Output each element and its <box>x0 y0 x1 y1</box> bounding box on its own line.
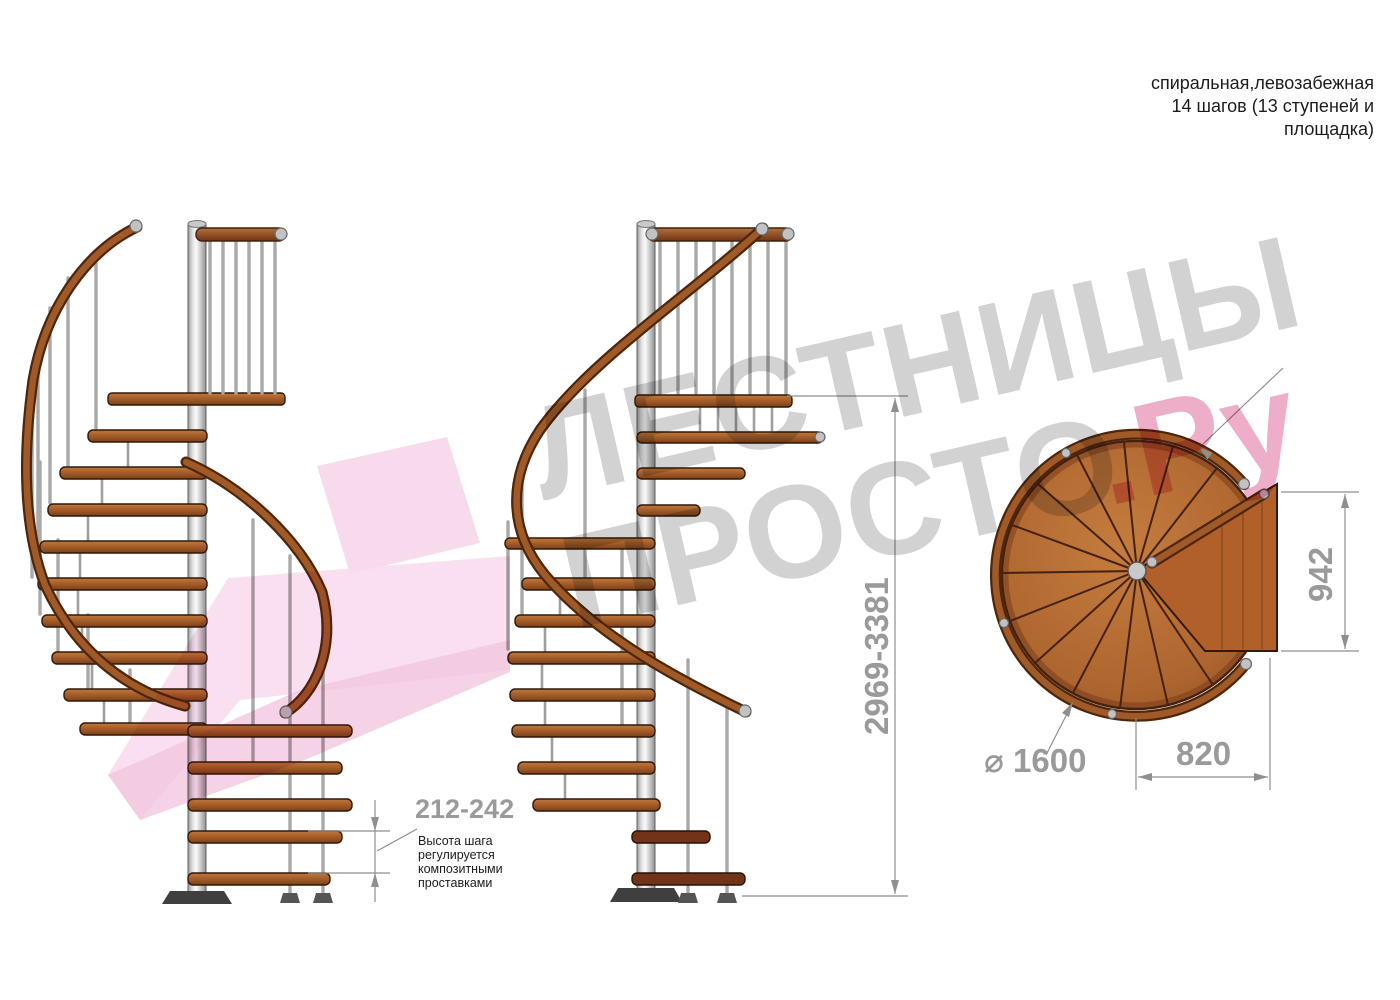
annotation-line-1: Высота шага <box>418 834 493 848</box>
title-line-2: 14 шагов (13 ступеней и <box>1172 96 1375 116</box>
technical-drawing: 2969-3381 212-242 Высота шага регулирует… <box>0 0 1400 1000</box>
landing-railing <box>646 228 794 241</box>
pole-cap <box>188 221 206 228</box>
watermark: ЛЕСТНИЦЫ ПРОСТО .Ру <box>108 207 1314 820</box>
landing-board <box>108 393 285 405</box>
dim-step-rise-label: 212-242 <box>415 794 514 824</box>
title-line-3: площадка) <box>1284 119 1374 139</box>
dim-platform-depth: 942 <box>1281 492 1359 651</box>
baluster-foot <box>280 893 300 903</box>
title-line-1: спиральная,левозабежная <box>1151 73 1374 93</box>
dim-total-height-label: 2969-3381 <box>858 577 895 735</box>
baluster-foot <box>717 893 737 903</box>
baluster-foot <box>678 893 698 903</box>
pole-base-flange <box>610 888 682 902</box>
annotation-line-4: проставками <box>418 876 492 890</box>
pole-cap <box>637 221 655 228</box>
dim-passage-width-label: 820 <box>1176 735 1231 772</box>
landing-railing <box>196 228 287 393</box>
drawing-page: 2969-3381 212-242 Высота шага регулирует… <box>0 0 1400 1000</box>
dim-diameter-label: ⌀ 1600 <box>984 742 1086 779</box>
center-pole-plan <box>1128 562 1146 580</box>
annotation-line-3: композитными <box>418 862 503 876</box>
annotation-line-2: регулируется <box>418 848 495 862</box>
dim-platform-depth-label: 942 <box>1302 547 1339 602</box>
pole-base-flange <box>162 891 232 904</box>
baluster-foot <box>313 893 333 903</box>
title-block: спиральная,левозабежная 14 шагов (13 сту… <box>1151 73 1374 139</box>
